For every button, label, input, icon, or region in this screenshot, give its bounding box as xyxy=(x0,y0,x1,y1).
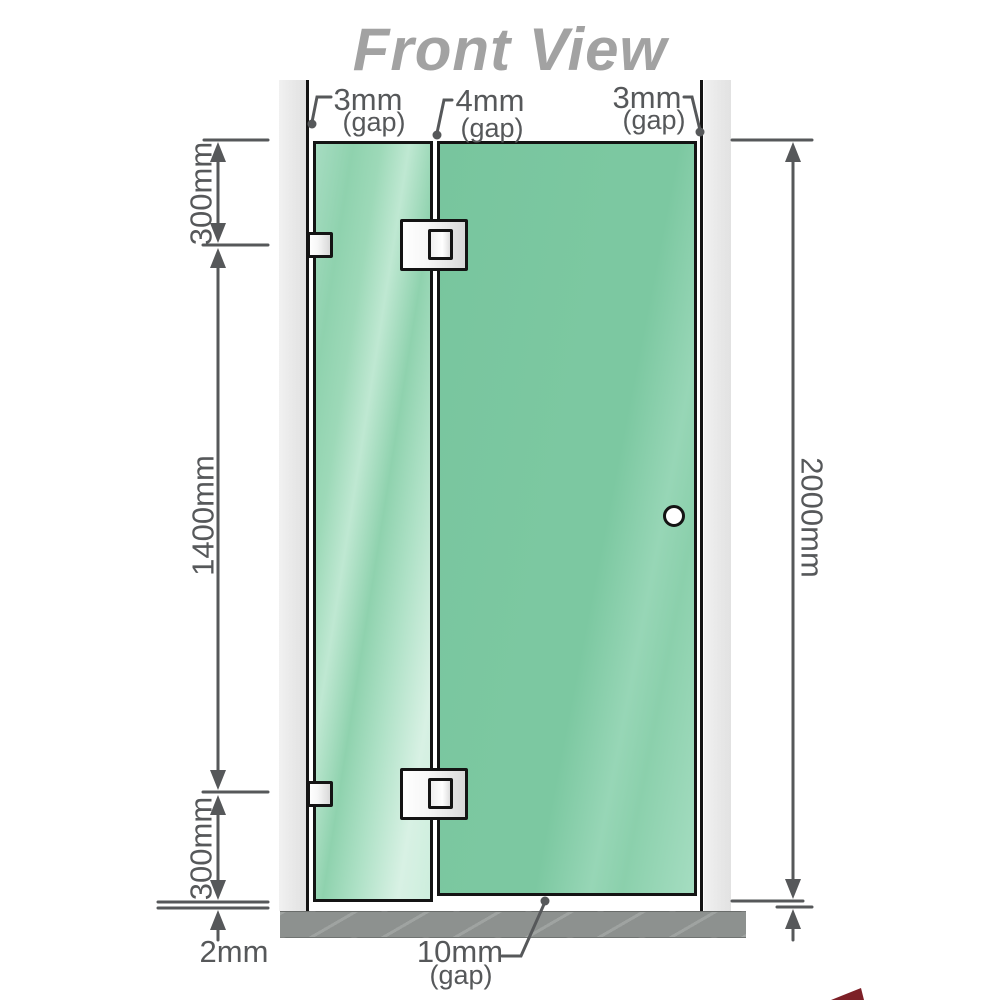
dimension-label-bottom-segment: 300mm xyxy=(186,789,217,909)
door-glass-panel xyxy=(437,141,697,896)
left-wall-channel xyxy=(279,80,306,911)
wall-bracket-top xyxy=(307,232,333,258)
gap-label-top-left-suffix: (gap) xyxy=(336,109,412,136)
door-hinge-bottom-knuckle xyxy=(428,778,453,809)
dimension-label-top-segment: 300mm xyxy=(186,134,217,254)
gap-label-top-middle-value: 4mm xyxy=(452,85,528,116)
gap-label-top-middle-suffix: (gap) xyxy=(454,115,530,142)
right-wall-channel xyxy=(704,80,731,911)
right-wall-edge-line xyxy=(700,80,703,911)
gap-label-bottom-suffix: (gap) xyxy=(411,962,511,989)
gap-label-top-right-suffix: (gap) xyxy=(616,107,692,134)
door-hinge-top-knuckle xyxy=(428,229,453,260)
watermark-corner xyxy=(831,988,864,1000)
shower-base-floor xyxy=(280,911,746,938)
front-view-diagram: Front View xyxy=(0,0,1000,1000)
diagram-title: Front View xyxy=(280,20,740,80)
dimension-label-total-height: 2000mm xyxy=(797,448,828,588)
dimension-label-middle-segment: 1400mm xyxy=(188,446,219,586)
wall-bracket-bottom xyxy=(307,781,333,807)
door-knob xyxy=(663,505,685,527)
dimension-label-floor-clearance: 2mm xyxy=(194,936,274,967)
